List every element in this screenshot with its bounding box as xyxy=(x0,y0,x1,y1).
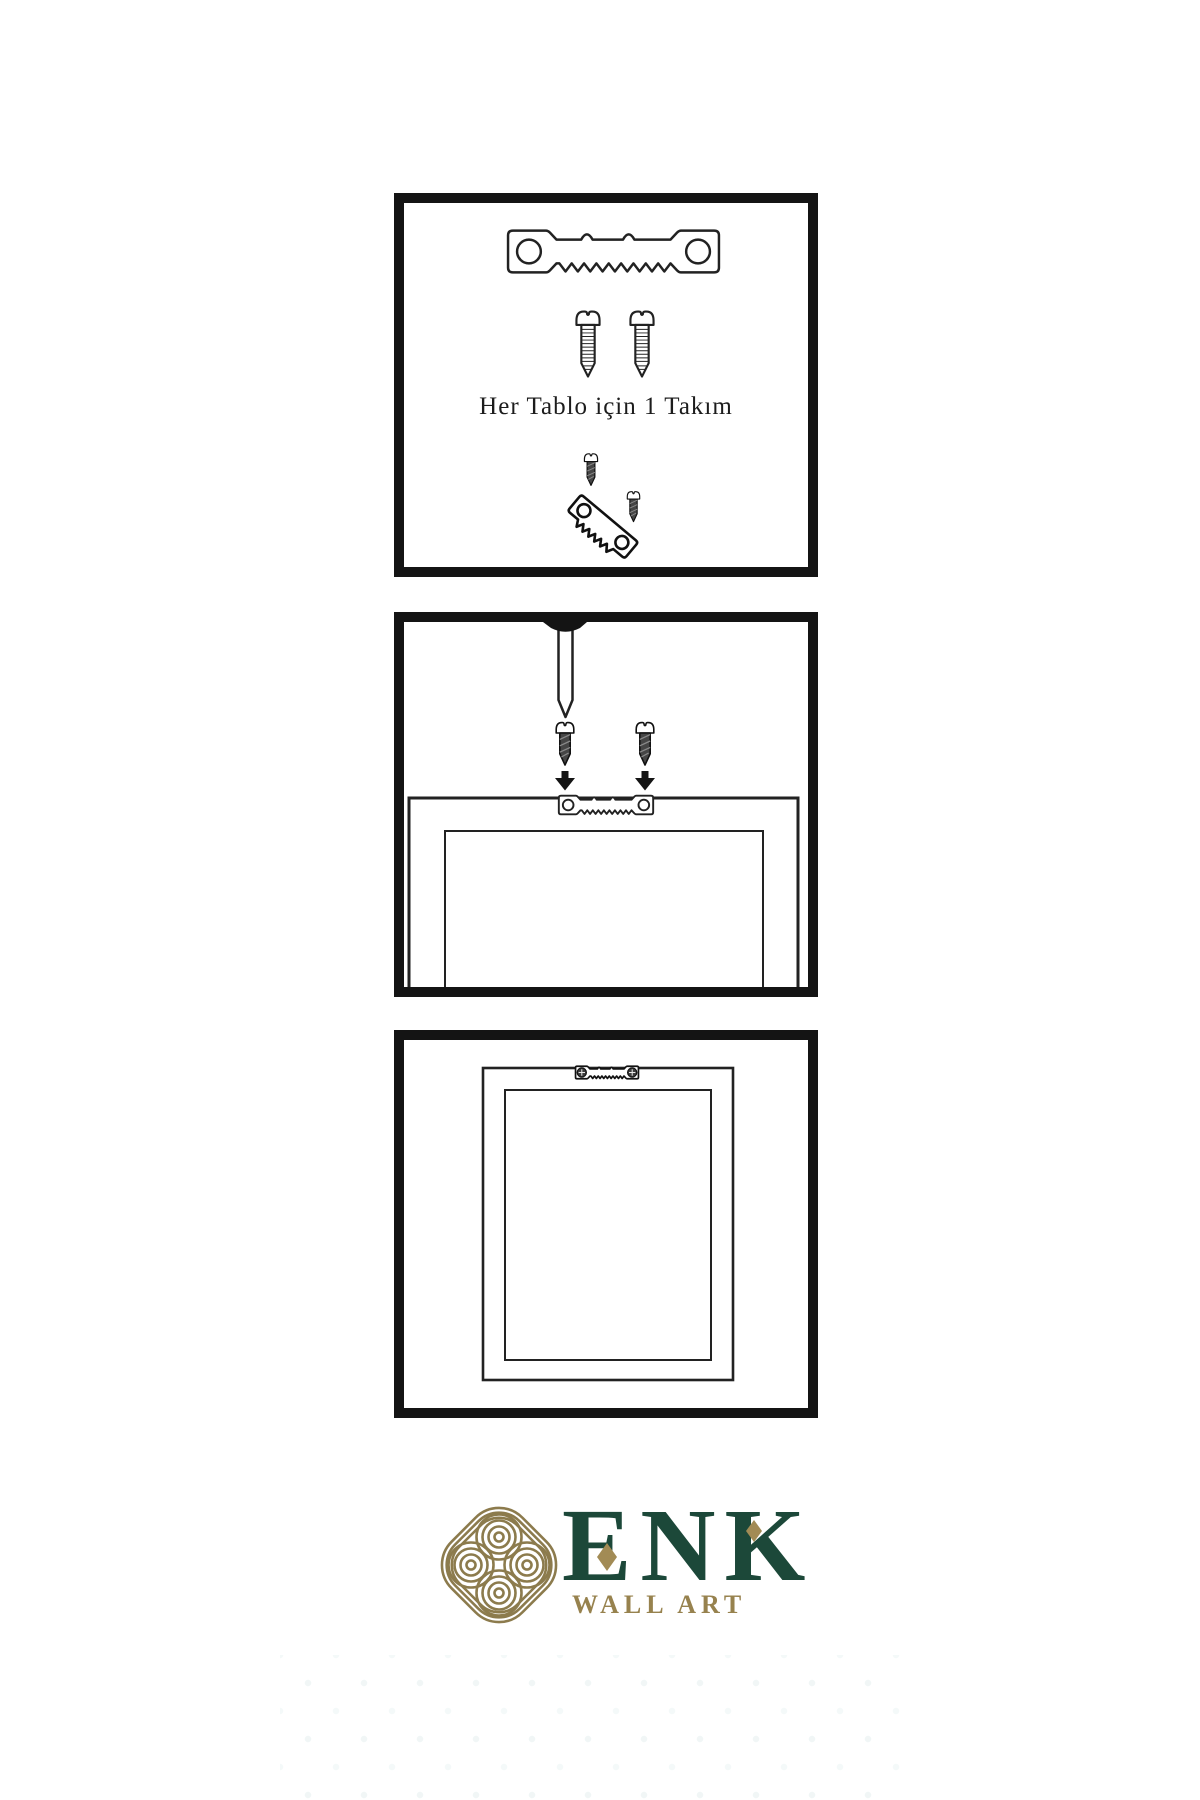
panel-hardware-kit: Her Tablo için 1 Takım xyxy=(394,193,818,577)
picture-frame-icon xyxy=(409,798,798,987)
faint-dot-watermark xyxy=(280,1655,920,1800)
angled-sawtooth-hanger-icon xyxy=(563,495,638,564)
screw-icon xyxy=(576,312,599,377)
instruction-sheet: Her Tablo için 1 Takım xyxy=(0,0,1200,1800)
brand-subtitle: WALL ART xyxy=(572,1590,746,1620)
picture-frame-icon xyxy=(483,1068,733,1380)
screw-icon xyxy=(584,454,597,486)
wall-nail-icon xyxy=(543,622,587,717)
kit-caption: Her Tablo için 1 Takım xyxy=(404,393,808,421)
sawtooth-hanger-icon xyxy=(508,231,719,273)
hardware-kit-drawing xyxy=(404,203,808,567)
arrow-down-icon xyxy=(635,771,655,791)
screw-icon xyxy=(630,312,653,377)
arrow-down-icon xyxy=(555,771,575,791)
interlocked-knot-icon xyxy=(440,1504,558,1626)
panel-mounting-step xyxy=(394,612,818,997)
screw-icon xyxy=(627,492,639,522)
hung-frame-drawing xyxy=(404,1040,808,1408)
mounting-step-drawing xyxy=(404,622,808,987)
screw-icon xyxy=(556,723,574,765)
brand-name: ENK xyxy=(562,1498,814,1594)
mini-mounting-illustration xyxy=(563,454,639,564)
panel-hung-frame xyxy=(394,1030,818,1418)
mounted-sawtooth-hanger-icon xyxy=(576,1066,639,1078)
screw-icon xyxy=(636,723,654,765)
